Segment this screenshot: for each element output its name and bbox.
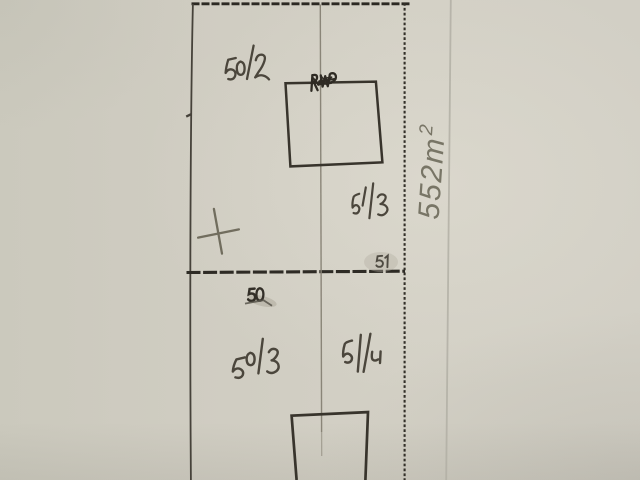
svg-text:2: 2	[416, 123, 438, 136]
svg-text:552m: 552m	[413, 135, 452, 220]
